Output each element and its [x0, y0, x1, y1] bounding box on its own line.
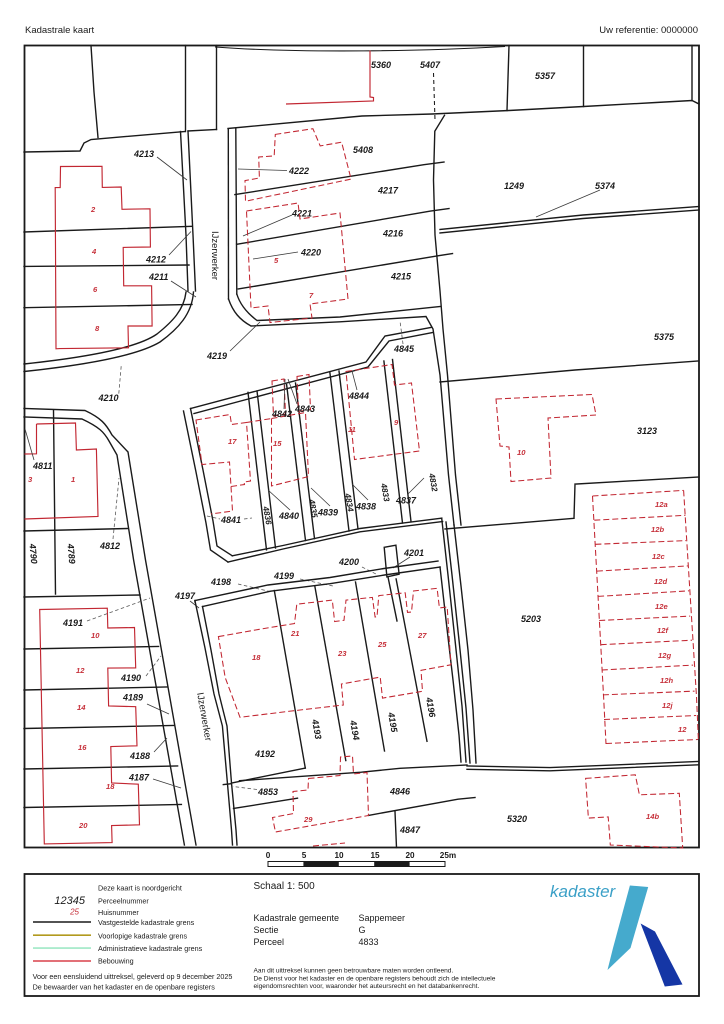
svg-text:4197: 4197 — [174, 591, 196, 601]
svg-text:4188: 4188 — [129, 751, 150, 761]
svg-text:Voor een eensluidend uittrekse: Voor een eensluidend uittreksel, gelever… — [33, 972, 233, 981]
svg-text:12j: 12j — [662, 701, 673, 710]
svg-text:25m: 25m — [440, 851, 456, 860]
svg-text:4841: 4841 — [220, 515, 241, 525]
svg-text:5: 5 — [302, 851, 307, 860]
svg-text:12h: 12h — [660, 676, 673, 685]
svg-text:4842: 4842 — [271, 409, 292, 419]
svg-text:Administratieve kadastrale gre: Administratieve kadastrale grens — [98, 944, 203, 953]
svg-text:4: 4 — [91, 247, 97, 256]
svg-text:4847: 4847 — [399, 825, 421, 835]
svg-text:4837: 4837 — [395, 496, 417, 506]
svg-text:4210: 4210 — [98, 393, 119, 403]
svg-text:21: 21 — [290, 629, 299, 638]
svg-text:1: 1 — [71, 475, 75, 484]
svg-text:12: 12 — [76, 666, 85, 675]
svg-text:16: 16 — [78, 743, 87, 752]
svg-text:Voorlopige kadastrale grens: Voorlopige kadastrale grens — [98, 931, 188, 940]
svg-text:Sectie: Sectie — [254, 925, 279, 935]
svg-text:12f: 12f — [657, 626, 669, 635]
svg-text:Vastgestelde kadastrale grens: Vastgestelde kadastrale grens — [98, 918, 195, 927]
svg-text:10: 10 — [517, 448, 526, 457]
svg-text:11: 11 — [348, 425, 356, 434]
svg-text:4190: 4190 — [120, 673, 141, 683]
svg-text:4200: 4200 — [338, 557, 359, 567]
svg-text:15: 15 — [273, 439, 282, 448]
svg-text:4790: 4790 — [27, 542, 39, 564]
svg-text:4219: 4219 — [206, 351, 227, 361]
svg-text:kadaster: kadaster — [550, 882, 617, 901]
svg-text:12e: 12e — [655, 602, 668, 611]
svg-text:4191: 4191 — [62, 618, 83, 628]
svg-text:12d: 12d — [654, 577, 667, 586]
svg-text:Perceelnummer: Perceelnummer — [98, 897, 149, 906]
svg-text:25: 25 — [69, 908, 79, 917]
svg-text:20: 20 — [78, 821, 88, 830]
svg-text:4843: 4843 — [294, 404, 315, 414]
svg-text:4812: 4812 — [99, 541, 120, 551]
svg-text:10: 10 — [91, 631, 100, 640]
svg-text:15: 15 — [370, 851, 380, 860]
svg-text:0: 0 — [266, 851, 271, 860]
svg-text:4212: 4212 — [145, 255, 166, 265]
svg-text:12b: 12b — [651, 525, 664, 534]
svg-text:4217: 4217 — [377, 186, 399, 196]
svg-text:4220: 4220 — [300, 248, 321, 258]
svg-text:12a: 12a — [655, 500, 668, 509]
svg-text:1249: 1249 — [504, 181, 524, 191]
svg-text:14b: 14b — [646, 812, 659, 821]
svg-text:4199: 4199 — [273, 571, 294, 581]
svg-text:4211: 4211 — [148, 272, 168, 282]
svg-text:4198: 4198 — [210, 577, 231, 587]
svg-text:4189: 4189 — [122, 693, 143, 703]
svg-text:Kadastrale gemeente: Kadastrale gemeente — [254, 913, 340, 923]
svg-text:4838: 4838 — [355, 502, 376, 512]
svg-text:Perceel: Perceel — [254, 937, 285, 947]
svg-text:18: 18 — [252, 653, 261, 662]
svg-text:4811: 4811 — [32, 461, 52, 471]
svg-text:4215: 4215 — [390, 272, 412, 282]
svg-text:Uw referentie: 0000000: Uw referentie: 0000000 — [599, 25, 698, 36]
svg-text:5374: 5374 — [595, 181, 615, 191]
svg-text:4201: 4201 — [403, 548, 424, 558]
svg-text:Deze kaart is noordgericht: Deze kaart is noordgericht — [98, 884, 182, 893]
svg-text:De bewaarder van het kadaster: De bewaarder van het kadaster en de open… — [33, 983, 216, 992]
svg-text:5320: 5320 — [507, 814, 527, 824]
svg-text:23: 23 — [337, 649, 347, 658]
svg-text:2: 2 — [90, 205, 96, 214]
svg-text:12345: 12345 — [54, 895, 85, 907]
svg-text:5357: 5357 — [535, 71, 556, 81]
svg-text:4789: 4789 — [65, 542, 77, 564]
svg-text:Bebouwing: Bebouwing — [98, 957, 134, 966]
svg-text:4187: 4187 — [128, 773, 150, 783]
svg-text:4839: 4839 — [317, 508, 338, 518]
svg-text:14: 14 — [77, 703, 86, 712]
svg-text:17: 17 — [228, 437, 237, 446]
svg-text:4846: 4846 — [389, 787, 411, 797]
svg-text:Sappemeer: Sappemeer — [359, 913, 406, 923]
svg-text:Aan dit uittreksel kunnen geen: Aan dit uittreksel kunnen geen betrouwba… — [254, 968, 454, 975]
svg-text:27: 27 — [417, 631, 427, 640]
svg-text:Kadastrale kaart: Kadastrale kaart — [25, 25, 95, 36]
svg-text:De Dienst voor het kadaster en: De Dienst voor het kadaster en de openba… — [254, 976, 496, 983]
svg-text:4213: 4213 — [133, 149, 154, 159]
svg-text:4222: 4222 — [288, 166, 309, 176]
svg-text:Huisnummer: Huisnummer — [98, 908, 139, 917]
svg-text:Schaal 1: 500: Schaal 1: 500 — [254, 881, 316, 892]
svg-text:5407: 5407 — [420, 60, 441, 70]
svg-text:4192: 4192 — [254, 749, 275, 759]
svg-text:25: 25 — [377, 640, 387, 649]
svg-text:29: 29 — [303, 815, 313, 824]
svg-text:12c: 12c — [652, 552, 665, 561]
svg-text:4216: 4216 — [382, 229, 404, 239]
svg-text:12g: 12g — [658, 651, 671, 660]
svg-text:5203: 5203 — [521, 614, 541, 624]
svg-text:4845: 4845 — [393, 344, 415, 354]
svg-text:12: 12 — [678, 725, 687, 734]
svg-text:5360: 5360 — [371, 60, 391, 70]
svg-text:20: 20 — [405, 851, 415, 860]
svg-text:5375: 5375 — [654, 332, 675, 342]
svg-text:4840: 4840 — [278, 511, 299, 521]
svg-text:18: 18 — [106, 782, 115, 791]
svg-text:eigendomsrechten voor, waarond: eigendomsrechten voor, waaronder het aut… — [254, 983, 480, 990]
svg-text:10: 10 — [334, 851, 344, 860]
svg-text:4221: 4221 — [291, 209, 312, 219]
svg-text:IJzerwerker: IJzerwerker — [209, 231, 220, 280]
svg-text:4844: 4844 — [348, 391, 369, 401]
svg-text:5408: 5408 — [353, 145, 373, 155]
svg-text:4833: 4833 — [359, 937, 379, 947]
svg-text:3123: 3123 — [637, 426, 657, 436]
svg-text:4853: 4853 — [257, 787, 278, 797]
svg-text:G: G — [359, 925, 366, 935]
